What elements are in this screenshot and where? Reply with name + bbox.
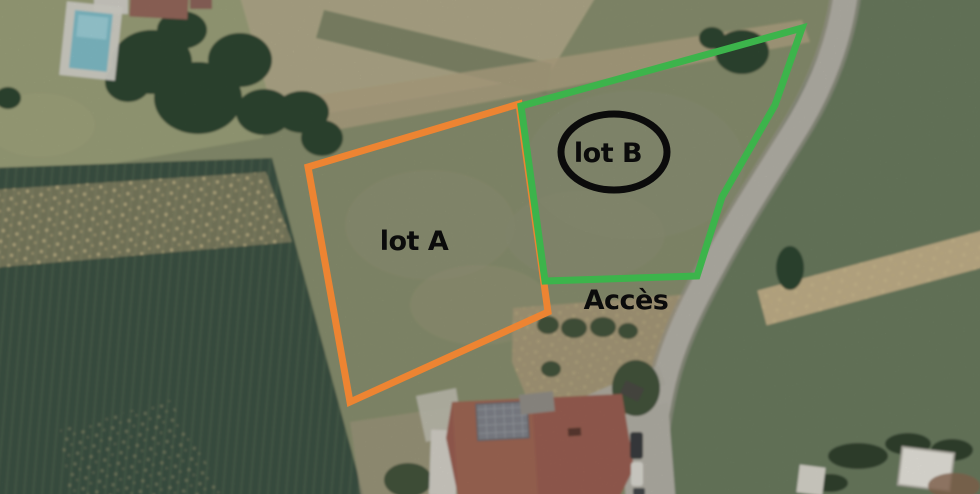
- satellite-image: lot A lot B Accès: [0, 0, 980, 494]
- lot-b-label: lot B: [574, 138, 642, 169]
- lot-a-label: lot A: [380, 226, 449, 257]
- photo-grain: [0, 0, 980, 494]
- aerial-map: lot A lot B Accès: [0, 0, 980, 494]
- access-label: Accès: [584, 285, 669, 316]
